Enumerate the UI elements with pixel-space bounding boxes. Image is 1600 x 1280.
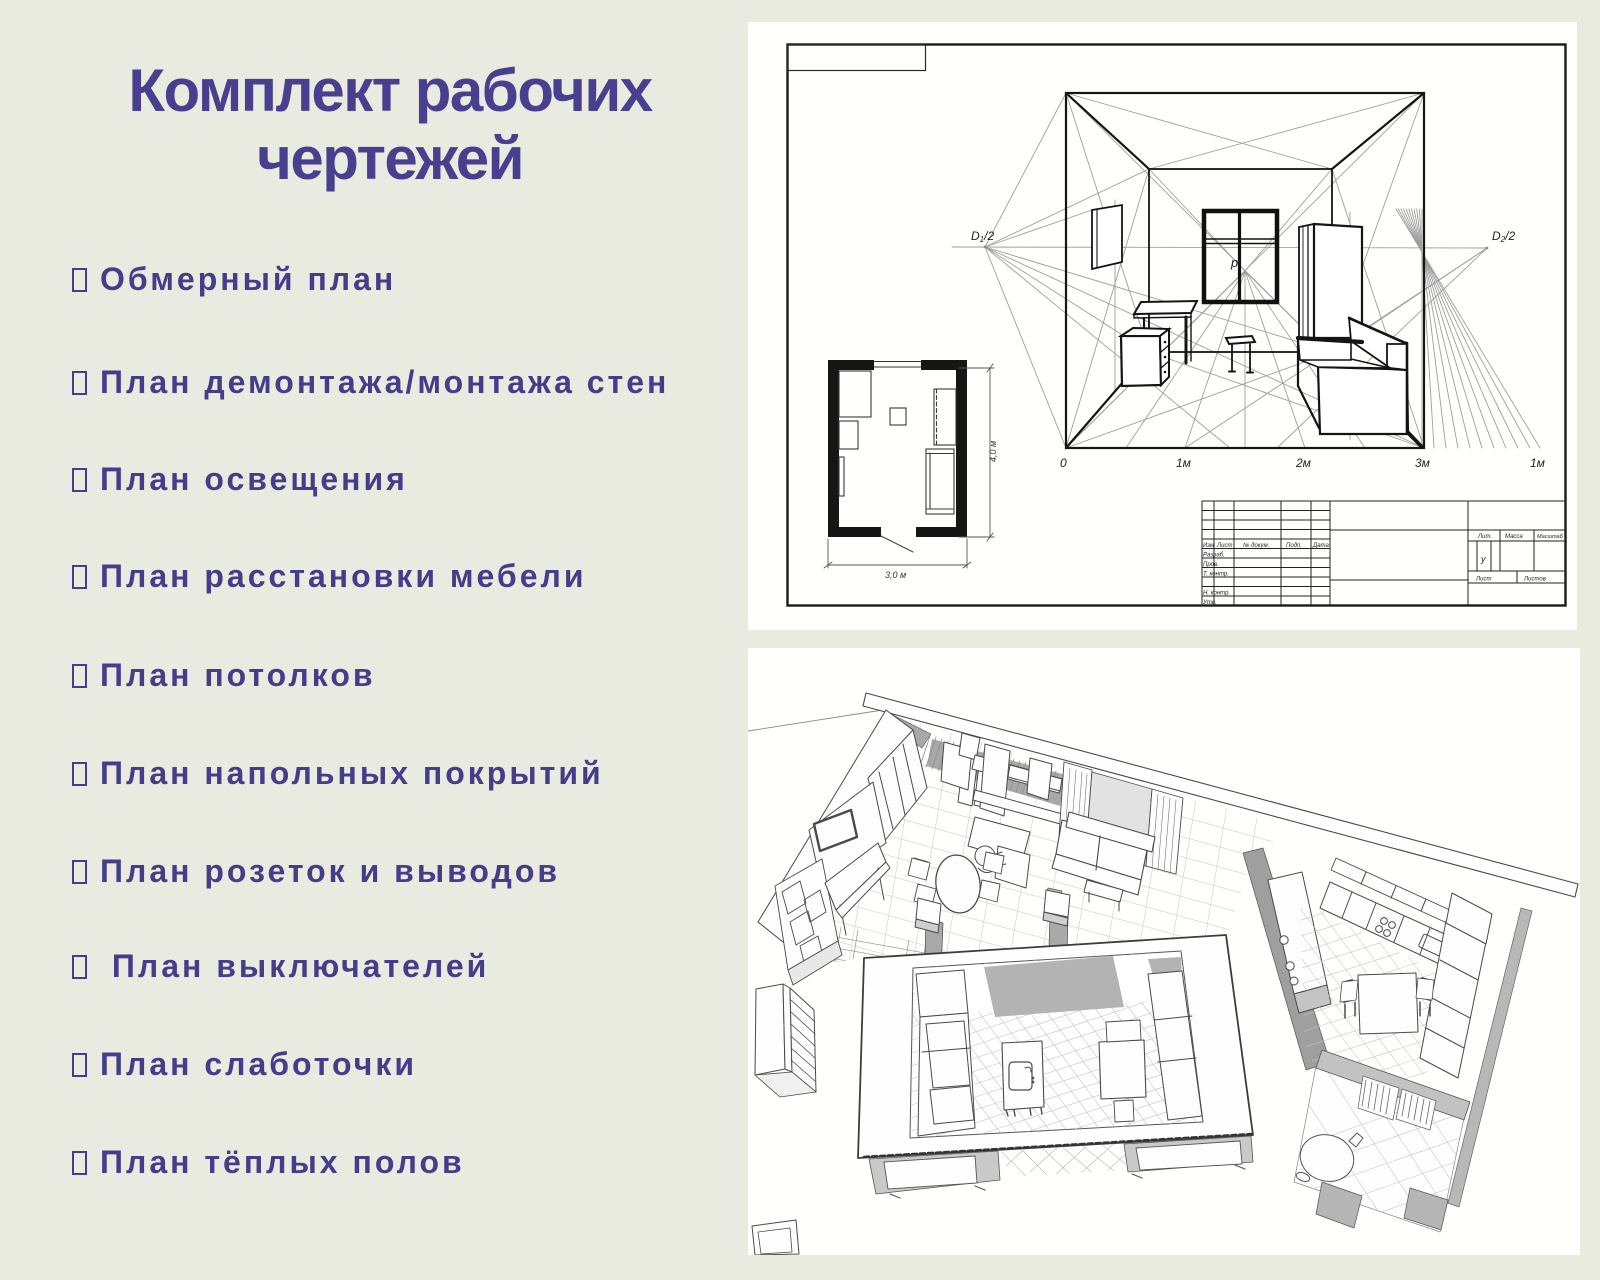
svg-text:Утв.: Утв. [1202, 600, 1217, 606]
svg-text:Масштаб: Масштаб [1537, 534, 1564, 540]
svg-text:Подп.: Подп. [1286, 543, 1302, 549]
svg-text:Разраб.: Разраб. [1203, 553, 1225, 559]
svg-text:p: p [1230, 255, 1238, 270]
svg-text:0: 0 [1060, 456, 1067, 470]
svg-text:Лист: Лист [1475, 577, 1491, 583]
svg-text:Лист: Лист [1216, 543, 1232, 549]
svg-text:Лит.: Лит. [1477, 534, 1492, 540]
svg-text:4,0 м: 4,0 м [988, 441, 998, 462]
svg-text:Н. контр.: Н. контр. [1203, 591, 1230, 597]
svg-text:Пров.: Пров. [1203, 562, 1219, 568]
svg-text:Дата: Дата [1312, 543, 1329, 549]
svg-text:Т. контр.: Т. контр. [1203, 572, 1229, 578]
svg-text:№ докум.: № докум. [1243, 542, 1269, 549]
svg-text:D1/2: D1/2 [971, 229, 994, 244]
svg-text:D2/2: D2/2 [1492, 229, 1515, 244]
svg-text:Масса: Масса [1505, 534, 1523, 540]
svg-text:2м: 2м [1295, 456, 1311, 470]
svg-text:3м: 3м [1415, 456, 1430, 470]
svg-text:3,0 м: 3,0 м [885, 570, 906, 580]
svg-text:1м: 1м [1176, 456, 1191, 470]
svg-text:Изм: Изм [1203, 543, 1214, 549]
svg-text:у: у [1480, 554, 1486, 564]
svg-text:Листов: Листов [1523, 577, 1546, 583]
svg-text:1м: 1м [1530, 456, 1545, 470]
